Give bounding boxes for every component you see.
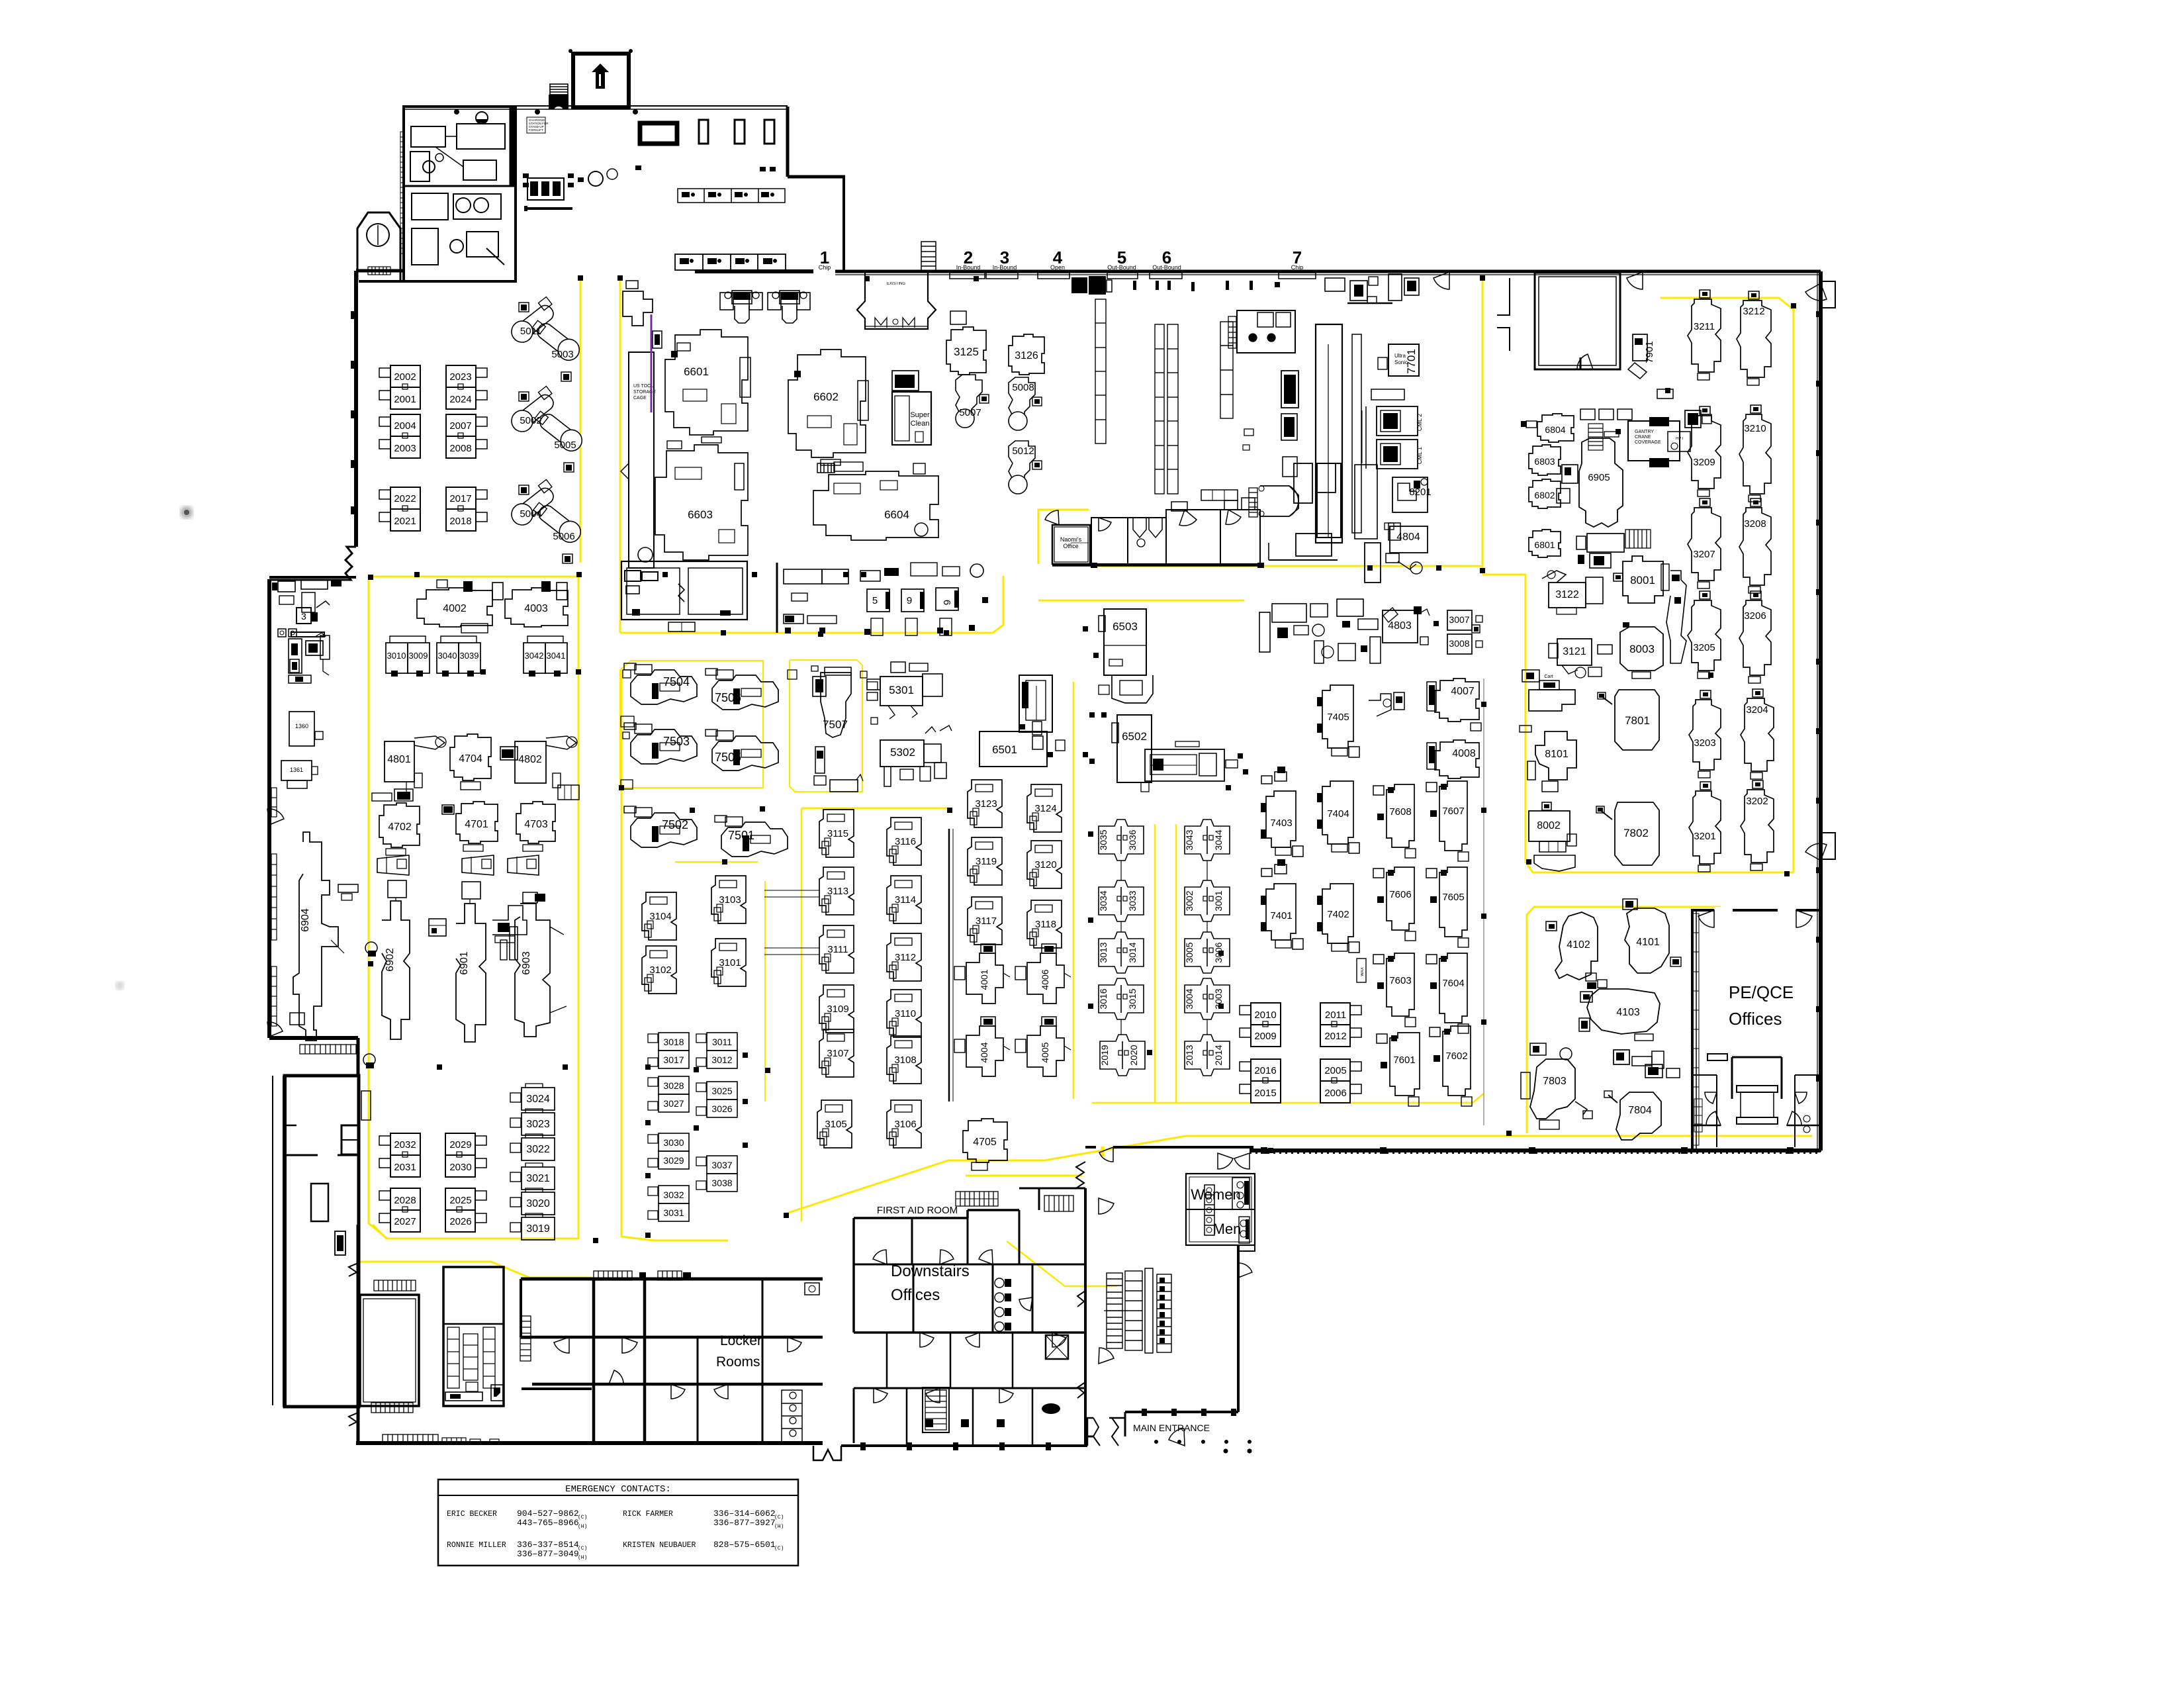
svg-text:7504: 7504 [663, 675, 690, 688]
svg-text:EXISTING: EXISTING [887, 282, 905, 286]
svg-text:4005: 4005 [1040, 1042, 1050, 1062]
svg-text:3119: 3119 [976, 856, 997, 867]
svg-text:5302: 5302 [890, 746, 915, 759]
svg-text:3123: 3123 [975, 798, 997, 810]
svg-text:3017: 3017 [663, 1055, 684, 1065]
svg-text:3113: 3113 [827, 886, 848, 897]
svg-text:2029: 2029 [449, 1139, 471, 1150]
svg-text:3019: 3019 [526, 1223, 550, 1235]
svg-text:RONNIE MILLER: RONNIE MILLER [447, 1541, 506, 1550]
svg-text:3026: 3026 [711, 1103, 732, 1114]
svg-text:336–314–6062: 336–314–6062 [713, 1509, 776, 1519]
svg-text:7608: 7608 [1389, 806, 1411, 818]
svg-text:3205: 3205 [1693, 642, 1715, 653]
svg-text:(C): (C) [774, 1515, 784, 1521]
svg-text:6503: 6503 [1113, 620, 1138, 633]
svg-text:4006: 4006 [1040, 969, 1050, 990]
svg-text:2002: 2002 [394, 371, 416, 383]
svg-text:COVERAGE: COVERAGE [1635, 440, 1661, 445]
svg-text:Open: Open [1050, 264, 1065, 271]
svg-text:Naomi's: Naomi's [1060, 536, 1082, 543]
svg-text:4702: 4702 [388, 821, 412, 833]
svg-text:In-Bound: In-Bound [993, 264, 1017, 271]
svg-text:6601: 6601 [684, 365, 709, 378]
svg-text:5012: 5012 [1012, 445, 1034, 457]
svg-text:3021: 3021 [526, 1173, 550, 1184]
svg-text:3030: 3030 [663, 1137, 684, 1148]
svg-text:3032: 3032 [663, 1190, 684, 1200]
svg-text:1360: 1360 [295, 723, 308, 729]
svg-text:2019: 2019 [1099, 1045, 1110, 1065]
svg-text:3039: 3039 [460, 651, 479, 661]
svg-text:RICK FARMER: RICK FARMER [623, 1510, 673, 1519]
svg-text:Locker: Locker [720, 1333, 762, 1348]
svg-text:GANTRY: GANTRY [1635, 430, 1654, 434]
svg-text:7801: 7801 [1625, 714, 1650, 727]
svg-text:7601: 7601 [1393, 1055, 1415, 1066]
svg-text:4001: 4001 [979, 969, 989, 990]
svg-text:7802: 7802 [1623, 827, 1649, 839]
svg-text:7603: 7603 [1389, 975, 1411, 986]
svg-text:2028: 2028 [394, 1195, 416, 1206]
svg-text:1361: 1361 [290, 767, 303, 773]
svg-text:7606: 7606 [1389, 889, 1411, 900]
svg-text:3118: 3118 [1035, 919, 1056, 930]
svg-text:(H): (H) [578, 1555, 587, 1561]
svg-text:3029: 3029 [663, 1155, 684, 1166]
svg-text:336–877–3049: 336–877–3049 [517, 1549, 579, 1559]
svg-text:4101: 4101 [1636, 937, 1660, 948]
svg-text:3203: 3203 [1694, 737, 1715, 749]
svg-text:3112: 3112 [895, 952, 916, 963]
svg-text:3041: 3041 [547, 651, 566, 661]
svg-text:2031: 2031 [394, 1162, 416, 1173]
svg-text:Women: Women [1191, 1186, 1240, 1203]
svg-text:7403: 7403 [1270, 818, 1292, 829]
svg-text:2025: 2025 [449, 1195, 471, 1206]
svg-text:3013: 3013 [1098, 942, 1109, 962]
svg-text:3105: 3105 [825, 1119, 846, 1130]
svg-text:3207: 3207 [1693, 549, 1715, 560]
svg-text:EMERGENCY CONTACTS:: EMERGENCY CONTACTS: [565, 1484, 671, 1495]
svg-text:6501: 6501 [992, 743, 1017, 756]
svg-text:7401: 7401 [1270, 910, 1292, 921]
svg-text:7503: 7503 [663, 735, 690, 748]
svg-text:Out-Bound: Out-Bound [1107, 264, 1136, 271]
svg-text:MAIN ENTRANCE: MAIN ENTRANCE [1133, 1423, 1210, 1433]
svg-text:3040: 3040 [438, 651, 457, 661]
svg-text:4704: 4704 [459, 753, 482, 765]
svg-text:3104: 3104 [649, 911, 671, 922]
svg-text:Chip: Chip [1291, 264, 1304, 271]
svg-text:2015: 2015 [1254, 1088, 1276, 1099]
svg-text:3014: 3014 [1127, 942, 1138, 962]
svg-text:6902: 6902 [385, 948, 396, 972]
svg-text:3208: 3208 [1744, 518, 1766, 530]
svg-text:5007: 5007 [959, 407, 981, 418]
svg-text:5301: 5301 [889, 684, 914, 696]
svg-text:3028: 3028 [663, 1080, 684, 1091]
svg-text:3211: 3211 [1694, 321, 1715, 332]
svg-text:2004: 2004 [394, 420, 416, 432]
svg-text:2030: 2030 [449, 1162, 471, 1173]
svg-text:WAX: WAX [1361, 967, 1365, 976]
svg-text:Chip: Chip [819, 264, 831, 271]
svg-text:In-Bound: In-Bound [956, 264, 981, 271]
svg-text:3004: 3004 [1184, 988, 1195, 1009]
svg-text:7506: 7506 [715, 691, 741, 704]
svg-text:4004: 4004 [979, 1042, 989, 1062]
svg-text:3110: 3110 [895, 1008, 916, 1019]
svg-text:6602: 6602 [813, 391, 839, 403]
svg-text:4007: 4007 [1451, 686, 1475, 697]
svg-text:7405: 7405 [1327, 712, 1349, 723]
svg-text:2001: 2001 [394, 394, 416, 405]
svg-text:3042: 3042 [525, 651, 544, 661]
svg-text:3011: 3011 [712, 1037, 732, 1047]
svg-text:(C): (C) [578, 1546, 587, 1552]
svg-text:3009: 3009 [409, 651, 428, 661]
svg-text:Offices: Offices [891, 1286, 940, 1304]
svg-text:3023: 3023 [526, 1119, 550, 1130]
svg-text:8002: 8002 [1537, 820, 1561, 831]
svg-text:3002: 3002 [1184, 890, 1195, 911]
svg-text:2018: 2018 [449, 516, 471, 527]
svg-text:3102: 3102 [649, 964, 671, 976]
svg-text:8003: 8003 [1629, 643, 1655, 655]
svg-text:3024: 3024 [526, 1094, 550, 1105]
svg-text:2014: 2014 [1213, 1045, 1224, 1065]
svg-text:3031: 3031 [663, 1207, 684, 1218]
svg-text:STORAGE: STORAGE [633, 390, 656, 395]
svg-text:7803: 7803 [1543, 1076, 1567, 1087]
svg-text:2020: 2020 [1128, 1045, 1139, 1065]
svg-text:3020: 3020 [526, 1198, 550, 1209]
svg-text:Ultra: Ultra [1394, 353, 1406, 359]
svg-text:4103: 4103 [1616, 1007, 1640, 1018]
svg-text:Offices: Offices [1729, 1009, 1782, 1029]
svg-text:2005: 2005 [1324, 1065, 1346, 1076]
svg-text:3006: 3006 [1213, 942, 1224, 962]
svg-text:3001: 3001 [1213, 890, 1224, 911]
svg-text:8001: 8001 [1630, 574, 1655, 586]
svg-text:5003: 5003 [551, 349, 573, 360]
svg-text:3101: 3101 [719, 957, 741, 968]
svg-text:6502: 6502 [1122, 730, 1147, 743]
svg-text:3210: 3210 [1744, 423, 1766, 434]
svg-text:4804: 4804 [1396, 532, 1420, 543]
svg-text:5008: 5008 [1012, 382, 1034, 393]
svg-text:8101: 8101 [1545, 749, 1569, 760]
svg-text:1360: 1360 [734, 293, 750, 301]
svg-text:7404: 7404 [1327, 808, 1349, 820]
svg-text:2016: 2016 [1254, 1065, 1276, 1076]
svg-text:(H): (H) [774, 1524, 784, 1530]
svg-text:ERIC BECKER: ERIC BECKER [447, 1510, 497, 1519]
svg-text:3209: 3209 [1693, 457, 1715, 468]
svg-text:3212: 3212 [1743, 306, 1764, 317]
svg-text:3036: 3036 [1127, 829, 1138, 850]
svg-text:336–877–3927: 336–877–3927 [713, 1518, 776, 1528]
svg-text:3115: 3115 [827, 828, 848, 839]
svg-text:7505: 7505 [715, 751, 741, 764]
svg-text:3103: 3103 [719, 894, 741, 906]
svg-text:(C): (C) [774, 1546, 784, 1552]
svg-text:6603: 6603 [688, 508, 713, 521]
svg-text:6905: 6905 [1588, 472, 1610, 483]
svg-text:2022: 2022 [394, 493, 416, 504]
svg-text:3027: 3027 [663, 1098, 684, 1109]
svg-text:3126: 3126 [1015, 350, 1038, 361]
svg-text:6904: 6904 [300, 908, 311, 932]
svg-text:9: 9 [907, 595, 912, 606]
svg-text:3108: 3108 [894, 1055, 916, 1066]
svg-text:6804: 6804 [1545, 424, 1565, 435]
svg-text:2026: 2026 [449, 1216, 471, 1227]
svg-text:Cart: Cart [1544, 675, 1553, 679]
svg-text:6903: 6903 [521, 951, 532, 975]
svg-text:2013: 2013 [1184, 1045, 1195, 1065]
svg-text:3007: 3007 [1449, 614, 1469, 625]
svg-text:2021: 2021 [394, 516, 416, 527]
svg-text:Office: Office [1063, 543, 1078, 549]
svg-text:2011: 2011 [1325, 1009, 1346, 1021]
svg-text:2023: 2023 [449, 371, 471, 383]
svg-text:HPT: HPT [1676, 437, 1684, 441]
svg-text:FIRST AID ROOM: FIRST AID ROOM [877, 1205, 958, 1216]
svg-text:4102: 4102 [1567, 939, 1590, 951]
svg-text:4701: 4701 [465, 819, 488, 830]
svg-text:Downstairs: Downstairs [891, 1262, 970, 1280]
svg-text:3202: 3202 [1746, 796, 1768, 807]
svg-text:6901: 6901 [459, 951, 470, 975]
svg-text:3010: 3010 [387, 651, 406, 661]
svg-text:2010: 2010 [1254, 1009, 1276, 1021]
svg-text:2027: 2027 [394, 1216, 416, 1227]
svg-text:3121: 3121 [1563, 646, 1586, 657]
svg-text:3109: 3109 [827, 1004, 848, 1015]
svg-text:4801: 4801 [387, 754, 411, 765]
svg-text:3111: 3111 [827, 944, 848, 955]
svg-text:6604: 6604 [884, 508, 909, 521]
svg-text:5002: 5002 [520, 415, 541, 426]
svg-text:828–575–6501: 828–575–6501 [713, 1540, 776, 1550]
svg-text:3033: 3033 [1127, 890, 1138, 911]
svg-text:2006: 2006 [1324, 1088, 1346, 1099]
svg-text:5006: 5006 [553, 531, 574, 542]
svg-text:2003: 2003 [394, 443, 416, 454]
svg-text:7901: 7901 [1644, 341, 1655, 363]
svg-text:3117: 3117 [976, 915, 997, 927]
svg-text:4705: 4705 [973, 1137, 997, 1148]
svg-text:(H): (H) [578, 1524, 587, 1530]
svg-text:336–337–8514: 336–337–8514 [517, 1540, 579, 1550]
svg-text:3008: 3008 [1449, 638, 1469, 649]
svg-text:Out-Bound: Out-Bound [1152, 264, 1181, 271]
svg-text:3044: 3044 [1213, 829, 1224, 850]
svg-text:KRISTEN NEUBAUER: KRISTEN NEUBAUER [623, 1541, 696, 1550]
svg-text:4802: 4802 [518, 754, 542, 765]
svg-text:7701: 7701 [1405, 349, 1418, 374]
svg-text:3025: 3025 [711, 1086, 732, 1096]
svg-text:3005: 3005 [1184, 942, 1195, 962]
svg-text:7402: 7402 [1327, 909, 1349, 920]
svg-text:(C): (C) [578, 1515, 587, 1521]
svg-text:3037: 3037 [711, 1160, 732, 1170]
svg-text:1363: 1363 [782, 293, 797, 301]
svg-text:FORKLIFT: FORKLIFT [529, 128, 543, 132]
svg-text:3015: 3015 [1127, 988, 1138, 1009]
svg-text:6: 6 [941, 600, 952, 605]
svg-text:4803: 4803 [1388, 620, 1412, 632]
svg-text:Men: Men [1213, 1221, 1242, 1237]
svg-text:3122: 3122 [1555, 589, 1579, 600]
svg-text:2017: 2017 [449, 493, 471, 504]
svg-text:3204: 3204 [1746, 704, 1768, 716]
svg-text:3124: 3124 [1034, 803, 1056, 814]
svg-text:PE/QCE: PE/QCE [1729, 982, 1794, 1002]
svg-text:6802: 6802 [1534, 490, 1555, 500]
svg-text:3116: 3116 [895, 836, 916, 847]
svg-text:5005: 5005 [554, 440, 576, 451]
svg-text:3107: 3107 [827, 1048, 848, 1059]
svg-text:3022: 3022 [526, 1144, 550, 1155]
svg-text:7602: 7602 [1445, 1051, 1467, 1062]
svg-text:2007: 2007 [449, 420, 471, 432]
svg-text:2024: 2024 [449, 394, 471, 405]
svg-text:3125: 3125 [954, 346, 979, 358]
svg-text:3114: 3114 [895, 894, 916, 906]
svg-text:2008: 2008 [449, 443, 471, 454]
svg-text:7502: 7502 [662, 818, 688, 831]
svg-text:3206: 3206 [1744, 610, 1766, 622]
svg-text:3012: 3012 [711, 1055, 732, 1065]
svg-text:CRANE: CRANE [1635, 435, 1651, 440]
svg-text:3120: 3120 [1034, 859, 1056, 870]
svg-text:6801: 6801 [1534, 539, 1555, 550]
svg-text:7507: 7507 [823, 718, 848, 731]
svg-text:4002: 4002 [443, 603, 467, 614]
svg-text:4008: 4008 [1452, 748, 1476, 759]
svg-text:4003: 4003 [524, 603, 548, 614]
svg-text:6803: 6803 [1534, 456, 1555, 467]
svg-text:3043: 3043 [1184, 829, 1195, 850]
svg-text:7605: 7605 [1442, 892, 1464, 903]
svg-text:3201: 3201 [1694, 831, 1715, 842]
svg-text:Super: Super [910, 411, 930, 419]
svg-text:3003: 3003 [1213, 988, 1224, 1009]
svg-text:7604: 7604 [1442, 978, 1464, 989]
svg-text:Rooms: Rooms [716, 1354, 760, 1370]
svg-text:4703: 4703 [524, 819, 548, 830]
svg-text:CAGE: CAGE [633, 396, 647, 400]
svg-text:7501: 7501 [728, 829, 754, 842]
svg-text:CML 1: CML 1 [1416, 447, 1423, 464]
svg-text:3106: 3106 [894, 1119, 916, 1130]
svg-text:7804: 7804 [1628, 1105, 1652, 1116]
svg-text:3016: 3016 [1098, 988, 1109, 1009]
svg-text:2032: 2032 [394, 1139, 416, 1150]
svg-text:2009: 2009 [1254, 1031, 1276, 1042]
svg-text:CML 2: CML 2 [1416, 414, 1423, 431]
svg-text:5: 5 [872, 595, 878, 606]
svg-text:2012: 2012 [1324, 1031, 1346, 1042]
svg-text:3018: 3018 [663, 1037, 684, 1047]
svg-text:3038: 3038 [711, 1178, 732, 1188]
svg-text:3035: 3035 [1098, 829, 1109, 850]
svg-text:7607: 7607 [1442, 806, 1464, 817]
svg-text:904–527–9862: 904–527–9862 [517, 1509, 579, 1519]
svg-text:3034: 3034 [1098, 890, 1109, 911]
svg-text:443–765–8966: 443–765–8966 [517, 1518, 579, 1528]
svg-text:Clean: Clean [911, 420, 930, 428]
